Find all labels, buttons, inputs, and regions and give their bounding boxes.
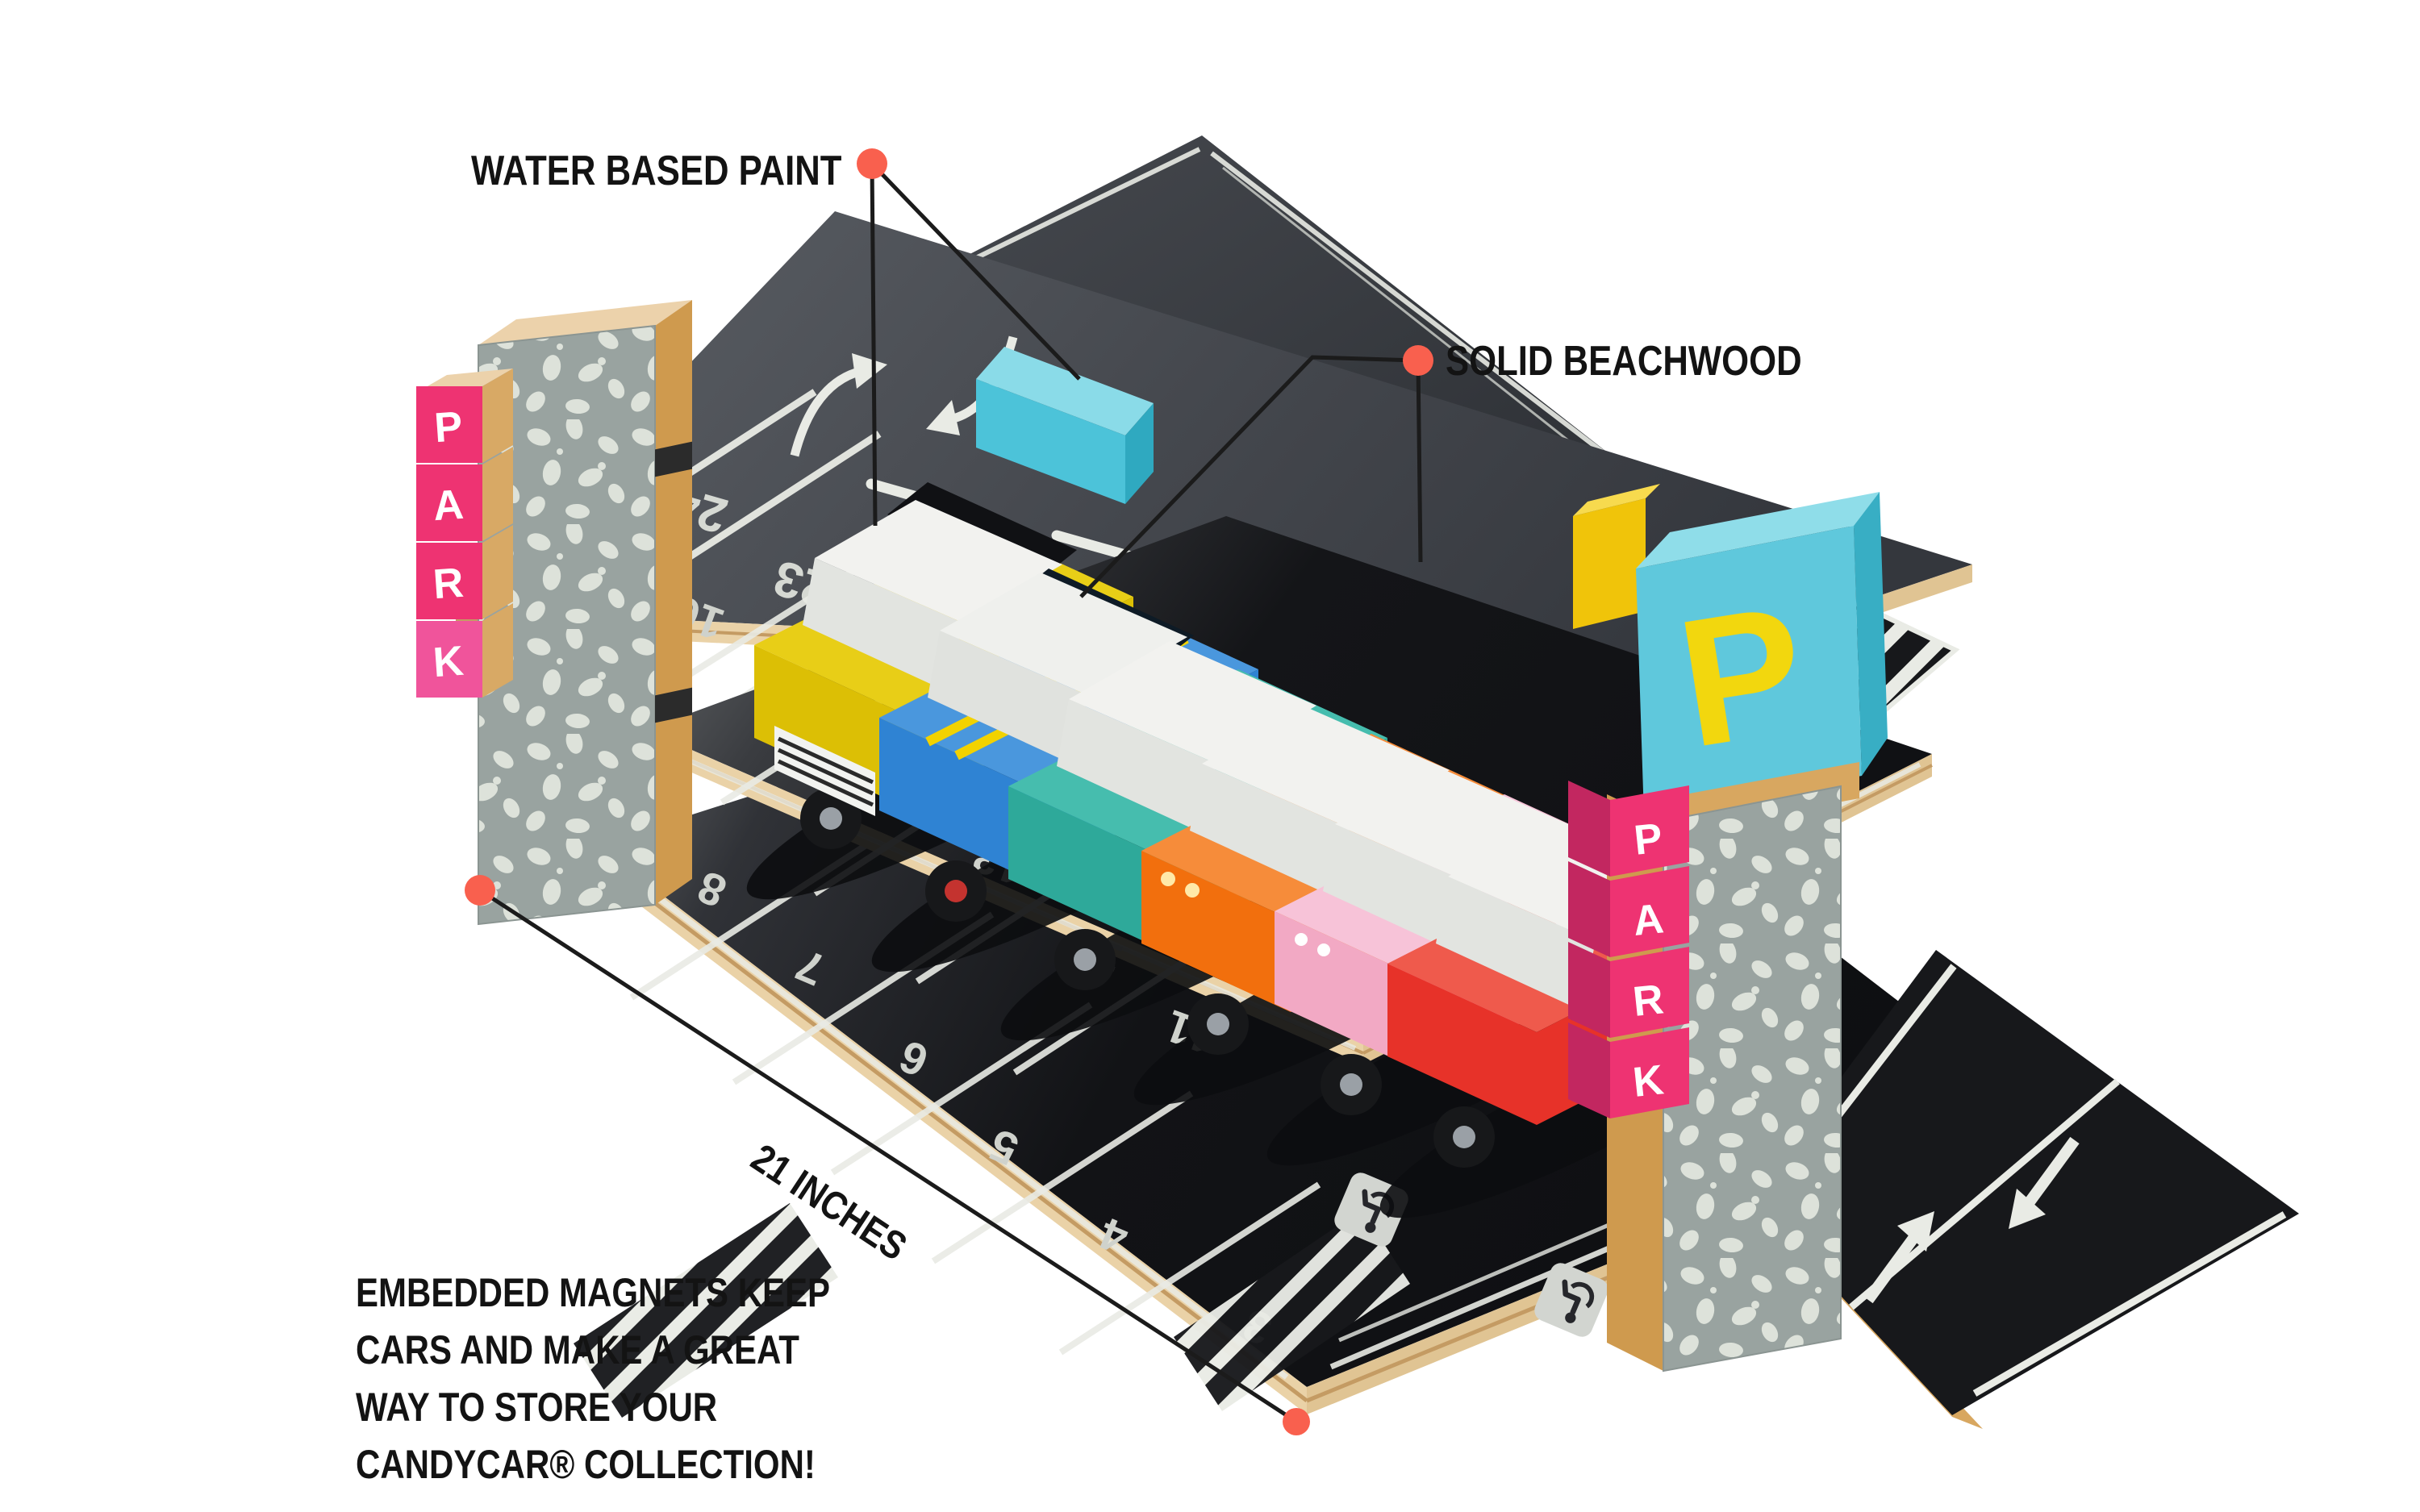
label-blurb: EMBEDDED MAGNETS KEEP CARS AND MAKE A GR… bbox=[356, 1264, 830, 1493]
park-letter: P bbox=[432, 403, 464, 452]
blurb-line: CANDYCAR® COLLECTION! bbox=[356, 1436, 830, 1493]
park-letter: R bbox=[432, 560, 465, 608]
park-letter: A bbox=[432, 481, 465, 530]
park-letter: R bbox=[1631, 976, 1666, 1026]
dot-icon bbox=[1403, 345, 1433, 376]
dot-icon bbox=[857, 148, 887, 179]
right-pillar: P P A R K bbox=[1568, 484, 1888, 1371]
blurb-line: CARS AND MAKE A GREAT bbox=[356, 1322, 830, 1379]
label-water-based-paint: WATER BASED PAINT bbox=[471, 147, 841, 195]
park-letter: P bbox=[1632, 814, 1665, 864]
park-letter: A bbox=[1631, 895, 1666, 945]
dot-icon bbox=[465, 875, 495, 906]
label-solid-beachwood: SOLID BEACHWOOD bbox=[1446, 337, 1802, 385]
left-pillar: P A R K bbox=[416, 300, 692, 924]
product-infographic: 24 23 8 7 6 5 4 3 bbox=[0, 0, 2420, 1512]
blurb-line: EMBEDDED MAGNETS KEEP bbox=[356, 1264, 830, 1322]
blurb-line: WAY TO STORE YOUR bbox=[356, 1379, 830, 1436]
dot-icon bbox=[1283, 1408, 1310, 1435]
park-letter: K bbox=[1631, 1056, 1667, 1106]
park-letter: K bbox=[432, 638, 465, 687]
yellow-block bbox=[1573, 498, 1646, 629]
